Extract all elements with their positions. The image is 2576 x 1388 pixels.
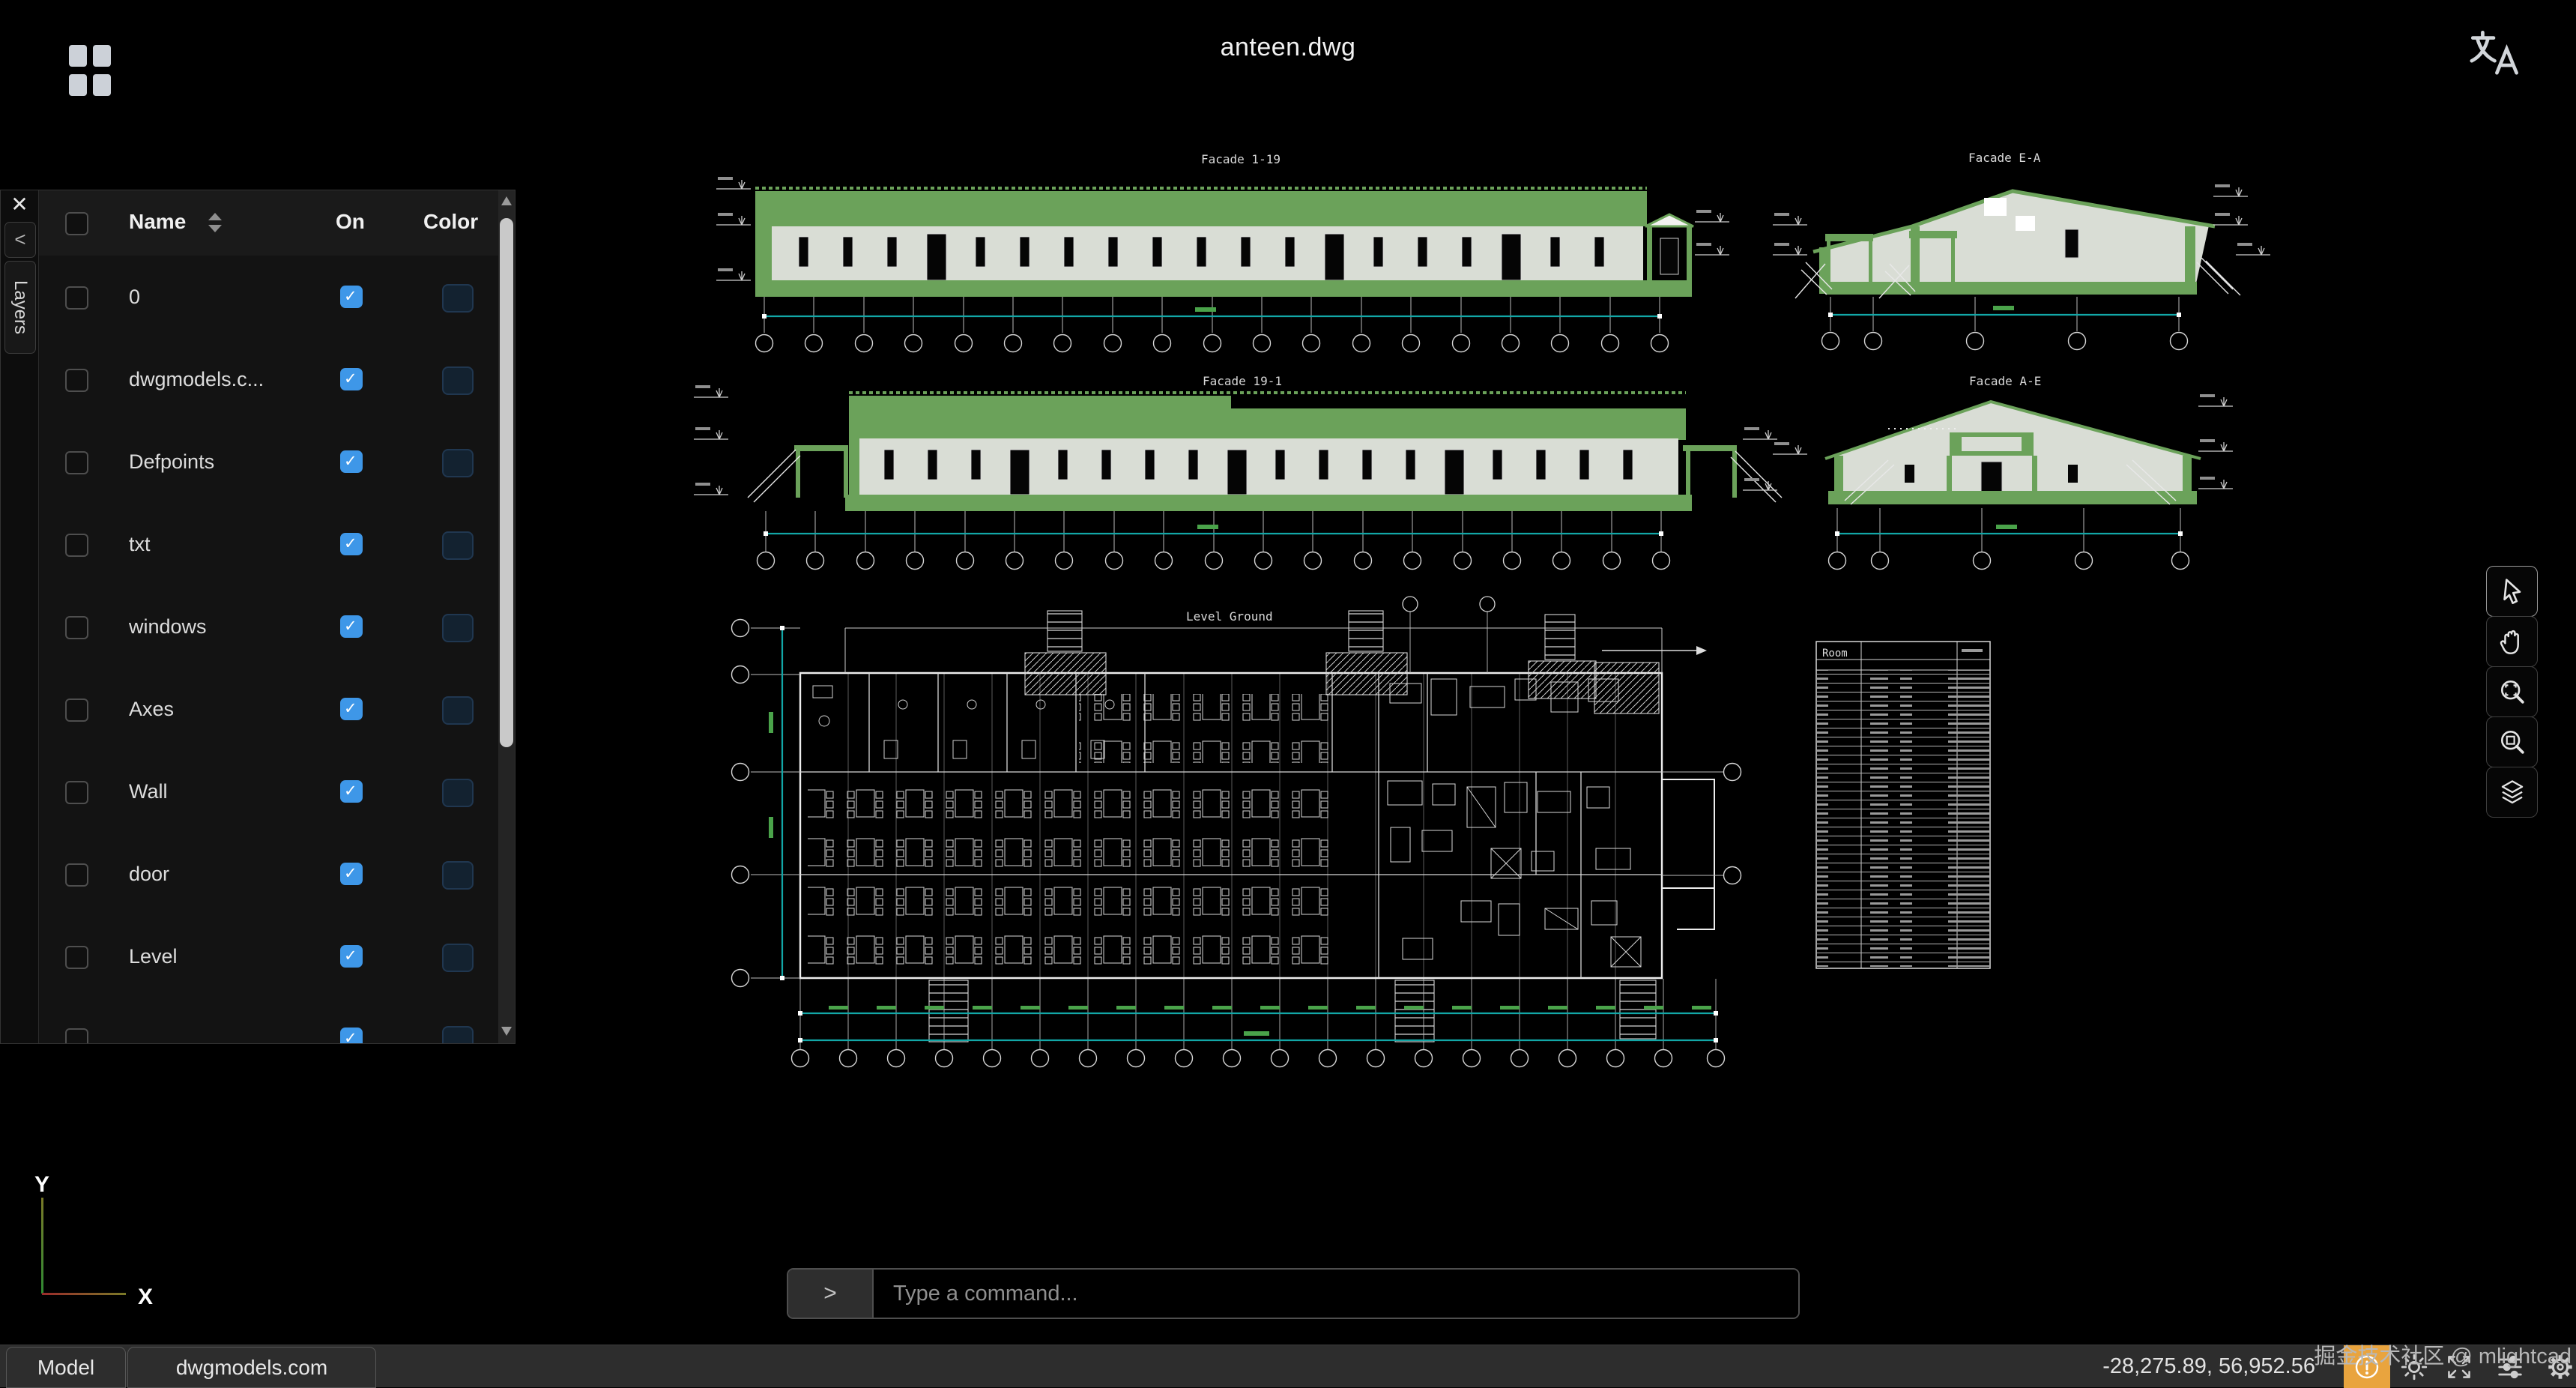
- layer-color-swatch[interactable]: [442, 284, 474, 313]
- layer-name: dwgmodels.c...: [129, 368, 264, 391]
- layer-visibility-checkbox[interactable]: [340, 945, 363, 968]
- layer-select-checkbox[interactable]: [65, 946, 88, 969]
- layer-row[interactable]: Axes: [39, 668, 498, 752]
- layer-visibility-checkbox[interactable]: [340, 533, 363, 555]
- facade-19-1-label: Facade 19-1: [1203, 374, 1282, 388]
- zoom-window-icon: [2497, 727, 2527, 757]
- layer-visibility-checkbox[interactable]: [340, 368, 363, 390]
- language-icon[interactable]: [2467, 27, 2521, 79]
- layer-select-checkbox[interactable]: [65, 1028, 88, 1044]
- grid-square: [69, 74, 87, 96]
- scrollbar-thumb[interactable]: [500, 218, 513, 747]
- column-on: On: [336, 210, 365, 234]
- layer-row[interactable]: dwgmodels.c...: [39, 338, 498, 422]
- collapse-panel-icon[interactable]: [4, 222, 36, 258]
- facade-19-1-drawing: Facade 19-1: [694, 374, 1782, 570]
- select-tool-button[interactable]: [2486, 566, 2538, 617]
- brightness-toggle[interactable]: [2396, 1345, 2432, 1388]
- layer-select-checkbox[interactable]: [65, 369, 88, 392]
- layer-color-swatch[interactable]: [442, 531, 474, 560]
- layer-visibility-checkbox[interactable]: [340, 1028, 363, 1044]
- room-schedule-table: Room: [1816, 642, 1990, 968]
- facade-1-19-label: Facade 1-19: [1201, 152, 1281, 166]
- layer-color-swatch[interactable]: [442, 1026, 474, 1044]
- layer-name: Axes: [129, 698, 174, 721]
- command-input[interactable]: [874, 1270, 1798, 1318]
- layer-select-checkbox[interactable]: [65, 286, 88, 310]
- panel-scrollbar[interactable]: [498, 190, 515, 1043]
- layer-row[interactable]: Level: [39, 915, 498, 999]
- layers-table: Name On Color 0 dwgmodels.c... Defpoints…: [39, 190, 498, 1043]
- floor-plan-drawing: Level Ground: [732, 597, 1741, 1067]
- layers-tab[interactable]: Layers: [4, 261, 36, 354]
- layer-color-swatch[interactable]: [442, 944, 474, 972]
- layer-visibility-checkbox[interactable]: [340, 863, 363, 885]
- layer-select-checkbox[interactable]: [65, 863, 88, 887]
- layer-row[interactable]: door: [39, 833, 498, 917]
- layer-row[interactable]: txt: [39, 503, 498, 587]
- ucs-axis-indicator: Y X: [13, 1162, 178, 1334]
- room-table-header: Room: [1822, 648, 1848, 660]
- facade-a-e-label: Facade A-E: [1969, 374, 2041, 388]
- layers-tool-button[interactable]: [2486, 767, 2538, 818]
- ucs-x-label: X: [138, 1285, 153, 1309]
- layer-name: 0: [129, 286, 140, 309]
- hand-icon: [2497, 627, 2527, 657]
- layer-color-swatch[interactable]: [442, 861, 474, 890]
- layer-row[interactable]: Defpoints: [39, 420, 498, 504]
- grid-square: [93, 74, 111, 96]
- close-icon[interactable]: [7, 192, 32, 217]
- status-bar: Model dwgmodels.com -28,275.89, 56,952.5…: [0, 1345, 2576, 1387]
- layer-select-checkbox[interactable]: [65, 534, 88, 557]
- cursor-icon: [2497, 576, 2527, 606]
- layer-color-swatch[interactable]: [442, 449, 474, 477]
- expand-icon: [2444, 1352, 2474, 1382]
- scroll-up-icon[interactable]: [501, 196, 512, 205]
- pan-tool-button[interactable]: [2486, 616, 2538, 667]
- settings-sliders-button[interactable]: [2492, 1345, 2528, 1388]
- document-title: anteen.dwg: [0, 33, 2576, 62]
- layer-visibility-checkbox[interactable]: [340, 450, 363, 473]
- zoom-fit-icon: [2497, 677, 2527, 707]
- layer-color-swatch[interactable]: [442, 614, 474, 642]
- floor-plan-label: Level Ground: [1186, 609, 1273, 624]
- layers-panel: Layers Name On Color 0 dwgmodels.c... De…: [0, 190, 515, 1044]
- fullscreen-button[interactable]: [2441, 1345, 2477, 1388]
- layer-visibility-checkbox[interactable]: [340, 286, 363, 308]
- layer-row[interactable]: windows: [39, 585, 498, 669]
- layer-color-swatch[interactable]: [442, 366, 474, 395]
- layer-name: Defpoints: [129, 450, 214, 474]
- layer-row-partial[interactable]: [39, 998, 498, 1044]
- top-bar: anteen.dwg: [0, 0, 2576, 97]
- kitchen-equipment: [1388, 679, 1641, 967]
- zoom-window-button[interactable]: [2486, 716, 2538, 767]
- ucs-y-label: Y: [34, 1172, 49, 1197]
- layer-name: Level: [129, 945, 178, 968]
- layer-color-swatch[interactable]: [442, 696, 474, 725]
- column-color: Color: [423, 210, 478, 234]
- layer-visibility-checkbox[interactable]: [340, 698, 363, 720]
- select-all-checkbox[interactable]: [65, 212, 88, 235]
- sort-icon[interactable]: [208, 213, 223, 232]
- preferences-button[interactable]: [2542, 1345, 2576, 1388]
- layers-panel-strip: Layers: [1, 190, 39, 1043]
- facade-a-e-drawing: Facade A-E: [1773, 374, 2233, 570]
- warning-button[interactable]: [2344, 1345, 2390, 1388]
- layer-select-checkbox[interactable]: [65, 698, 88, 722]
- layer-select-checkbox[interactable]: [65, 616, 88, 639]
- facade-e-a-label: Facade E-A: [1968, 151, 2041, 165]
- facade-e-a-drawing: Facade E-A: [1773, 151, 2270, 350]
- tab-model[interactable]: Model: [6, 1347, 126, 1388]
- scroll-down-icon[interactable]: [501, 1027, 512, 1036]
- layers-table-header: Name On Color: [39, 190, 498, 257]
- layer-visibility-checkbox[interactable]: [340, 615, 363, 638]
- layer-select-checkbox[interactable]: [65, 451, 88, 474]
- tab-layout-dwgmodels[interactable]: dwgmodels.com: [127, 1347, 376, 1388]
- command-bar: >: [787, 1268, 1800, 1319]
- layer-name: txt: [129, 533, 151, 556]
- zoom-fit-button[interactable]: [2486, 666, 2538, 717]
- command-prompt: >: [788, 1270, 874, 1318]
- sliders-icon: [2495, 1352, 2525, 1382]
- layer-name: door: [129, 863, 169, 886]
- layer-select-checkbox[interactable]: [65, 781, 88, 804]
- layer-name: Wall: [129, 780, 168, 803]
- alert-circle-icon: [2353, 1353, 2381, 1381]
- layer-visibility-checkbox[interactable]: [340, 780, 363, 803]
- layer-name: windows: [129, 615, 207, 639]
- facade-1-19-drawing: Facade 1-19: [716, 152, 1729, 352]
- cursor-coordinates: -28,275.89, 56,952.56: [2102, 1345, 2315, 1388]
- layer-row[interactable]: Wall: [39, 750, 498, 834]
- layers-icon: [2497, 777, 2527, 807]
- sun-icon: [2399, 1352, 2429, 1382]
- layer-color-swatch[interactable]: [442, 779, 474, 807]
- gear-icon: [2545, 1352, 2575, 1382]
- layer-row[interactable]: 0: [39, 256, 498, 340]
- column-name[interactable]: Name: [129, 210, 186, 234]
